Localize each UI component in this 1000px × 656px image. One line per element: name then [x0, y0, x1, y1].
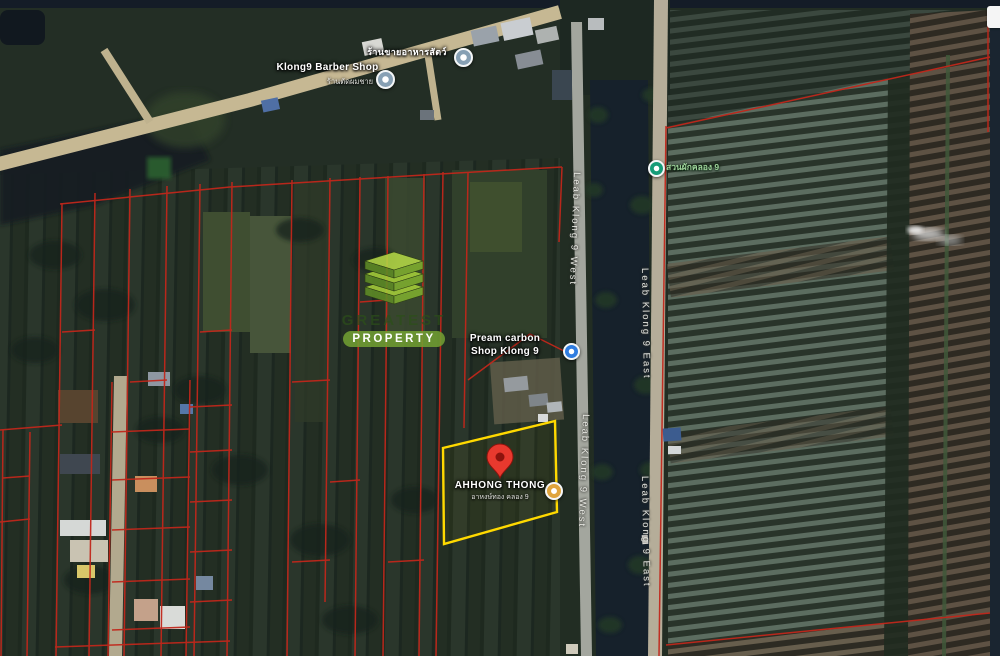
satellite-imagery: [0, 0, 1000, 656]
pet-food-shop-label[interactable]: ร้านขายอาหารสัตว์: [352, 45, 462, 59]
shopping-poi-icon[interactable]: [563, 343, 580, 360]
map-control-partial[interactable]: [987, 6, 1000, 28]
barber-shop-label[interactable]: Klong9 Barber Shop: [255, 62, 400, 73]
satellite-map[interactable]: Klong9 Barber Shop ร้านตัดผมชาย ร้านขายอ…: [0, 0, 1000, 656]
ahhong-thong-sublabel: อาหงษ์ทอง คลอง 9: [440, 492, 560, 503]
barber-shop-sublabel: ร้านตัดผมชาย: [300, 76, 400, 88]
pream-carbon-label-line2[interactable]: Shop Klong 9: [455, 346, 555, 357]
road-label-east-2: Leab Klong 9 East: [639, 476, 652, 588]
pream-carbon-label-line1[interactable]: Pream carbon: [455, 333, 555, 344]
garden-poi-icon[interactable]: [648, 160, 665, 177]
ahhong-thong-label[interactable]: AHHONG THONG: [440, 480, 560, 491]
garden-label[interactable]: สวนผักคลอง 9: [666, 160, 719, 174]
road-label-east-1: Leab Klong 9 East: [639, 268, 652, 380]
